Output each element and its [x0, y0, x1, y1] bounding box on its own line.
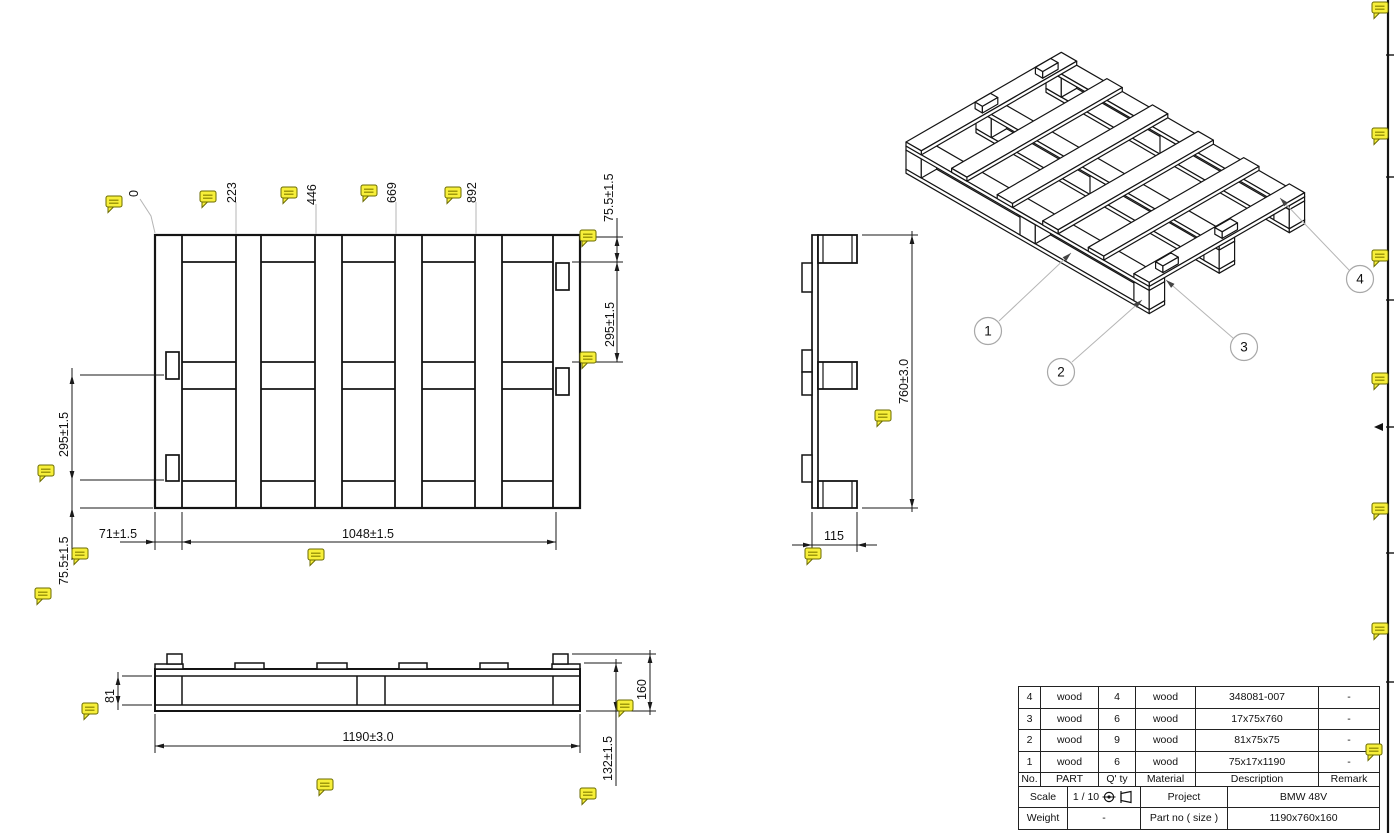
- comment-note-icon[interactable]: [361, 185, 377, 202]
- comment-note-icon[interactable]: [1366, 744, 1382, 761]
- dimension-label: 892: [465, 182, 479, 203]
- dimension-arrow: [182, 540, 191, 545]
- front-view: [155, 654, 580, 711]
- sheet-border: [1374, 0, 1394, 833]
- comment-note-icon[interactable]: [445, 187, 461, 204]
- dimension-label: 295±1.5: [603, 302, 617, 347]
- balloon-number: 4: [1356, 272, 1364, 287]
- comment-note-icon[interactable]: [35, 588, 51, 605]
- dimension-label: 446: [305, 184, 319, 205]
- comment-note-icon[interactable]: [580, 788, 596, 805]
- dimension-arrow: [910, 235, 915, 244]
- comment-note-icon[interactable]: [1372, 2, 1388, 19]
- dimension-arrow: [615, 253, 620, 262]
- dimension-arrow: [70, 375, 75, 384]
- side-view: [802, 235, 857, 508]
- dimension-label: 295±1.5: [57, 412, 71, 457]
- isometric-view: [906, 52, 1305, 313]
- dimension-arrow: [70, 508, 75, 517]
- positioning-block-mark: [802, 263, 812, 292]
- dimension-arrow: [155, 744, 164, 749]
- comment-note-icon[interactable]: [106, 196, 122, 213]
- dimension-label: 1190±3.0: [342, 730, 393, 744]
- comment-note-icon[interactable]: [1372, 250, 1388, 267]
- positioning-block-mark: [556, 263, 569, 290]
- comment-note-icon[interactable]: [317, 779, 333, 796]
- dimension-arrow: [615, 262, 620, 271]
- balloon-leader: [1072, 300, 1142, 362]
- dimension-label: 669: [385, 182, 399, 203]
- dimension-arrow: [614, 663, 619, 672]
- comment-note-icon[interactable]: [1372, 503, 1388, 520]
- balloon-number: 2: [1057, 365, 1065, 380]
- dimension-arrow: [547, 540, 556, 545]
- comment-note-icon[interactable]: [82, 703, 98, 720]
- balloon-leader: [999, 253, 1071, 321]
- dimension-arrow: [70, 471, 75, 480]
- border-center-arrow: [1374, 423, 1383, 431]
- balloon-leader: [1280, 198, 1349, 270]
- comment-note-icon[interactable]: [200, 191, 216, 208]
- dimension-label: 115: [824, 529, 844, 543]
- comment-note-icon[interactable]: [805, 548, 821, 565]
- comment-note-icon[interactable]: [580, 230, 596, 247]
- dimension-label: 223: [225, 182, 239, 203]
- positioning-block-mark: [166, 352, 179, 379]
- comment-note-icon[interactable]: [1372, 373, 1388, 390]
- comment-note-icon[interactable]: [580, 352, 596, 369]
- dimension-arrow: [615, 237, 620, 246]
- dimension-arrow: [910, 499, 915, 508]
- comment-note-icon[interactable]: [72, 548, 88, 565]
- comment-note-icon[interactable]: [281, 187, 297, 204]
- comment-note-icon[interactable]: [617, 700, 633, 717]
- positioning-block-mark: [167, 654, 182, 664]
- balloon-leader: [1166, 280, 1233, 338]
- balloon-number: 1: [984, 324, 992, 339]
- dimension-arrow: [615, 353, 620, 362]
- comment-note-icon[interactable]: [1372, 623, 1388, 640]
- positioning-block-mark: [802, 455, 812, 482]
- dimension-arrow: [648, 654, 653, 663]
- dimension-label: 75.5±1.5: [57, 536, 71, 585]
- positioning-block-mark: [166, 455, 179, 481]
- cad-drawing-sheet: 4 wood 4 wood 348081-007 - 3 wood 6 wood…: [0, 0, 1394, 833]
- dimension-label: 760±3.0: [897, 359, 911, 404]
- positioning-block-mark: [556, 368, 569, 395]
- dimension-label: 160: [635, 679, 649, 700]
- dimension-label: 1048±1.5: [342, 527, 394, 541]
- dimension-arrow: [571, 744, 580, 749]
- positioning-block-mark: [553, 654, 568, 664]
- dimension-arrow: [116, 676, 121, 685]
- dimension-arrow: [857, 543, 866, 548]
- top-view: [155, 235, 580, 508]
- positioning-block-mark: [802, 372, 812, 395]
- dimension-label: 71±1.5: [99, 527, 137, 541]
- dimension-label: 81: [103, 689, 117, 703]
- dimension-arrow: [803, 543, 812, 548]
- dimension-label: 132±1.5: [601, 736, 615, 781]
- comment-note-icon[interactable]: [875, 410, 891, 427]
- dimension-label: 75.5±1.5: [602, 173, 616, 222]
- dimension-label: 0: [127, 190, 141, 197]
- dimension-arrow: [648, 702, 653, 711]
- dimension-arrow: [146, 540, 155, 545]
- comment-note-icon[interactable]: [38, 465, 54, 482]
- positioning-block-mark: [802, 350, 812, 372]
- balloon-number: 3: [1240, 340, 1248, 355]
- comment-note-icon[interactable]: [1372, 128, 1388, 145]
- comment-note-icon[interactable]: [308, 549, 324, 566]
